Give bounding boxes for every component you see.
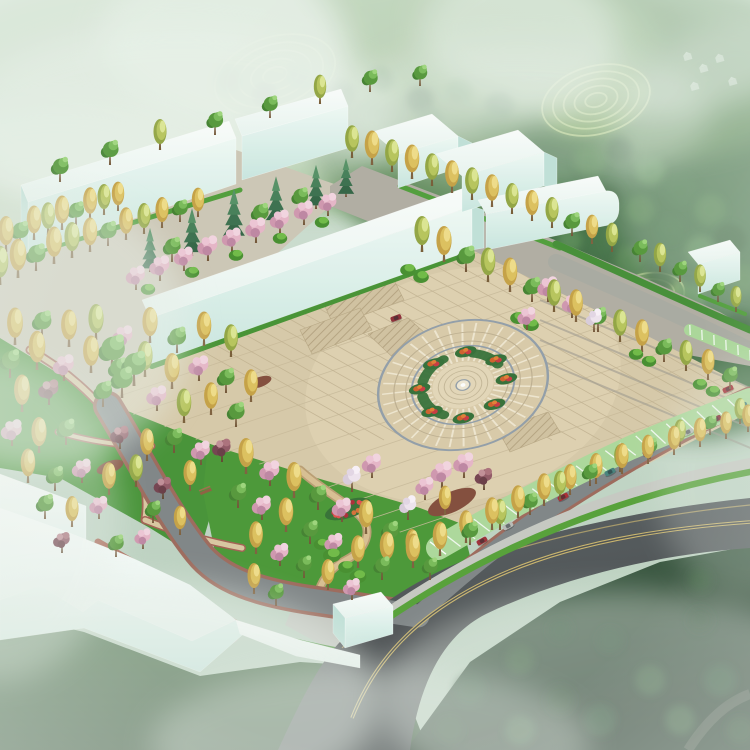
aerial-plaza-rendering bbox=[0, 0, 750, 750]
vignette-overlay bbox=[0, 0, 750, 750]
vignette bbox=[0, 0, 750, 750]
rendering-canvas bbox=[0, 0, 750, 750]
